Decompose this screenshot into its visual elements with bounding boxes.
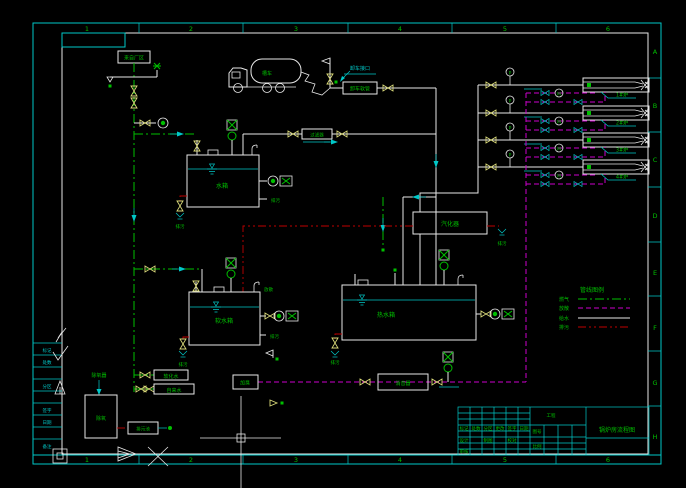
- drawing-title: 锅炉房流程图: [599, 426, 635, 434]
- revision-strip: 标记 处数 分区 签字 日期 备注: [33, 328, 68, 463]
- gas-supply-line[interactable]: 来自厂区 软化水 自来水: [107, 51, 202, 394]
- burner-row-3[interactable]: P 3#炉 M: [478, 123, 649, 160]
- title-block: 标记 处数 分区 更改 签字 日期 设计 制图 校对 审核 工程 图号 比例 锅…: [458, 407, 649, 455]
- drain-point: [168, 426, 172, 430]
- tb-cell: 工程: [547, 412, 556, 419]
- compressor[interactable]: [158, 118, 168, 128]
- blowdown-line: [243, 226, 413, 292]
- silencer-label: 消音器: [395, 380, 410, 387]
- vaporizer-label: 汽化器: [441, 220, 459, 228]
- deaerator-note: 除氧器: [91, 372, 106, 379]
- gauge-m: M: [557, 92, 561, 98]
- cross-symbol: [148, 447, 168, 466]
- tank2-drain: 排污: [179, 361, 188, 368]
- burner-2[interactable]: [583, 106, 649, 120]
- truck-label: 槽车: [262, 70, 272, 77]
- legend-label-gas: 燃气: [559, 296, 569, 303]
- zone-bottom-4: 4: [398, 456, 402, 464]
- vaporizer-unit[interactable]: 汽化器 排污: [243, 85, 507, 292]
- tank3-drain: 排污: [331, 359, 340, 366]
- revision-row: 备注: [43, 443, 52, 450]
- tank3-label: 热水箱: [377, 311, 395, 319]
- zone-right-f: F: [653, 324, 657, 332]
- tb-cell: 更改: [496, 425, 505, 432]
- frame-notch: [62, 33, 125, 47]
- gauge-m: M: [557, 120, 561, 126]
- tank1-drain: 排污: [176, 223, 185, 230]
- burner-row-2[interactable]: P 2#炉 M: [478, 96, 649, 133]
- tanker-truck[interactable]: 槽车: [229, 59, 330, 95]
- tb-cell: 日期: [520, 426, 529, 432]
- burner-1[interactable]: [583, 78, 649, 92]
- zone-right-d: D: [652, 212, 657, 220]
- zone-bottom-2: 2: [189, 456, 193, 464]
- filter-line[interactable]: 过滤器: [243, 88, 439, 285]
- zone-bottom-6: 6: [606, 456, 610, 464]
- gauge-m: M: [557, 147, 561, 153]
- gauge-p: P: [509, 71, 512, 77]
- gauge-p: P: [509, 99, 512, 105]
- tank1-pump[interactable]: [268, 176, 278, 186]
- legend-label-vent: 放散: [559, 305, 569, 312]
- odorizer-label: 加臭: [240, 380, 250, 387]
- legend-title: 管线图例: [580, 286, 604, 294]
- border-symbols: [118, 447, 168, 466]
- zone-right-e: E: [653, 269, 657, 277]
- zone-bottom-3: 3: [294, 456, 298, 464]
- tank2-label: 软水箱: [215, 317, 233, 325]
- tank1-label: 水箱: [216, 182, 228, 190]
- tb-cell: 标记: [460, 425, 469, 432]
- truck-wheel: [234, 84, 243, 93]
- corner-box: [53, 449, 67, 463]
- revision-row: 分区: [43, 383, 52, 390]
- revision-row: 标记: [43, 347, 52, 354]
- zone-bottom-5: 5: [503, 456, 507, 464]
- tank1-drain-label: 排污: [271, 197, 280, 204]
- tank-2[interactable]: 软水箱 放散 排污 排污: [179, 258, 299, 368]
- drawing-frame: 1 2 3 4 5 6 1 2 3 4 5 6 A B C D E F G H: [33, 23, 661, 464]
- burner-1-label: 1#炉: [616, 92, 628, 99]
- break-symbol: [56, 328, 66, 342]
- revision-row: 签字: [43, 407, 52, 414]
- legend-label-water: 给水: [559, 315, 569, 322]
- burner-row-4[interactable]: P 4#炉 M: [478, 150, 649, 187]
- vent-manifold[interactable]: 消音器 加臭: [233, 93, 526, 390]
- soft-water-label: 软化水: [163, 373, 178, 380]
- zone-right-a: A: [653, 48, 658, 56]
- zone-top-6: 6: [606, 25, 610, 33]
- tank3-pump[interactable]: [490, 309, 500, 319]
- tank-3[interactable]: 热水箱 排污: [331, 250, 515, 366]
- tb-cell: 图号: [533, 429, 542, 435]
- cad-viewport: 1 2 3 4 5 6 1 2 3 4 5 6 A B C D E F G H …: [0, 0, 686, 488]
- tb-cell: 签字: [508, 425, 517, 432]
- truck-wheel: [263, 84, 272, 93]
- burner-row-1[interactable]: P 1#炉 M: [478, 68, 649, 105]
- tb-cell: 校对: [508, 437, 517, 444]
- view-markers: [266, 350, 284, 406]
- zone-top-5: 5: [503, 25, 507, 33]
- zone-bottom-1: 1: [85, 456, 89, 464]
- city-water-label: 自来水: [166, 387, 181, 394]
- tank-1[interactable]: 水箱 排污 排污: [176, 120, 293, 230]
- legend: 管线图例 燃气 放散 给水 排污: [559, 286, 630, 331]
- burner-3[interactable]: [583, 133, 649, 147]
- zone-right-c: C: [653, 156, 658, 164]
- deaerator-unit[interactable]: 除氧器 除氧 排污池: [85, 372, 172, 438]
- zone-right-b: B: [653, 102, 657, 110]
- vent-star: [153, 63, 161, 69]
- gauge-p: P: [509, 126, 512, 132]
- burner-2-label: 2#炉: [616, 120, 628, 127]
- vap-drain-label: 排污: [498, 240, 507, 247]
- zone-top-1: 1: [85, 25, 89, 33]
- zone-right-h: H: [653, 433, 658, 441]
- legend-label-drain: 排污: [559, 324, 569, 331]
- leader-check: [53, 346, 68, 360]
- tb-cell: 设计: [460, 437, 469, 444]
- filter-label: 过滤器: [310, 132, 324, 139]
- gauge-p: P: [509, 153, 512, 159]
- truck-wheel: [276, 84, 285, 93]
- tank2-vent-label: 放散: [264, 286, 273, 293]
- tb-cell: 分区: [484, 425, 493, 432]
- gauge-m: M: [557, 174, 561, 180]
- tank2-pump[interactable]: [274, 311, 284, 321]
- burner-4-label: 4#炉: [616, 174, 628, 181]
- zone-top-2: 2: [189, 25, 193, 33]
- tb-cell: 制图: [484, 437, 493, 444]
- tank2-drain-label: 排污: [270, 333, 279, 340]
- tb-cell: 审核: [460, 448, 469, 455]
- zone-top-4: 4: [398, 25, 402, 33]
- burner-3-label: 3#炉: [616, 147, 628, 154]
- drain-pit-label: 排污池: [136, 426, 150, 433]
- revision-row: 日期: [43, 420, 52, 426]
- revision-row: 处数: [43, 359, 52, 366]
- unloading-station[interactable]: 卸车接口 卸车软管: [322, 58, 436, 94]
- hose-label: 卸车软管: [350, 86, 370, 93]
- zone-top-3: 3: [294, 25, 298, 33]
- unloading-hose: [301, 72, 330, 95]
- crosshair-cursor: [200, 396, 281, 488]
- revision-triangle: [55, 381, 65, 394]
- tb-cell: 比例: [533, 443, 542, 450]
- deaerator-label: 除氧: [96, 415, 106, 422]
- burner-4[interactable]: [583, 160, 649, 174]
- supply-label: 来自厂区: [124, 55, 144, 62]
- zone-right-g: G: [652, 379, 657, 387]
- cad-canvas[interactable]: 1 2 3 4 5 6 1 2 3 4 5 6 A B C D E F G H …: [0, 0, 686, 488]
- unload-note: 卸车接口: [350, 65, 370, 72]
- tb-cell: 处数: [472, 425, 481, 432]
